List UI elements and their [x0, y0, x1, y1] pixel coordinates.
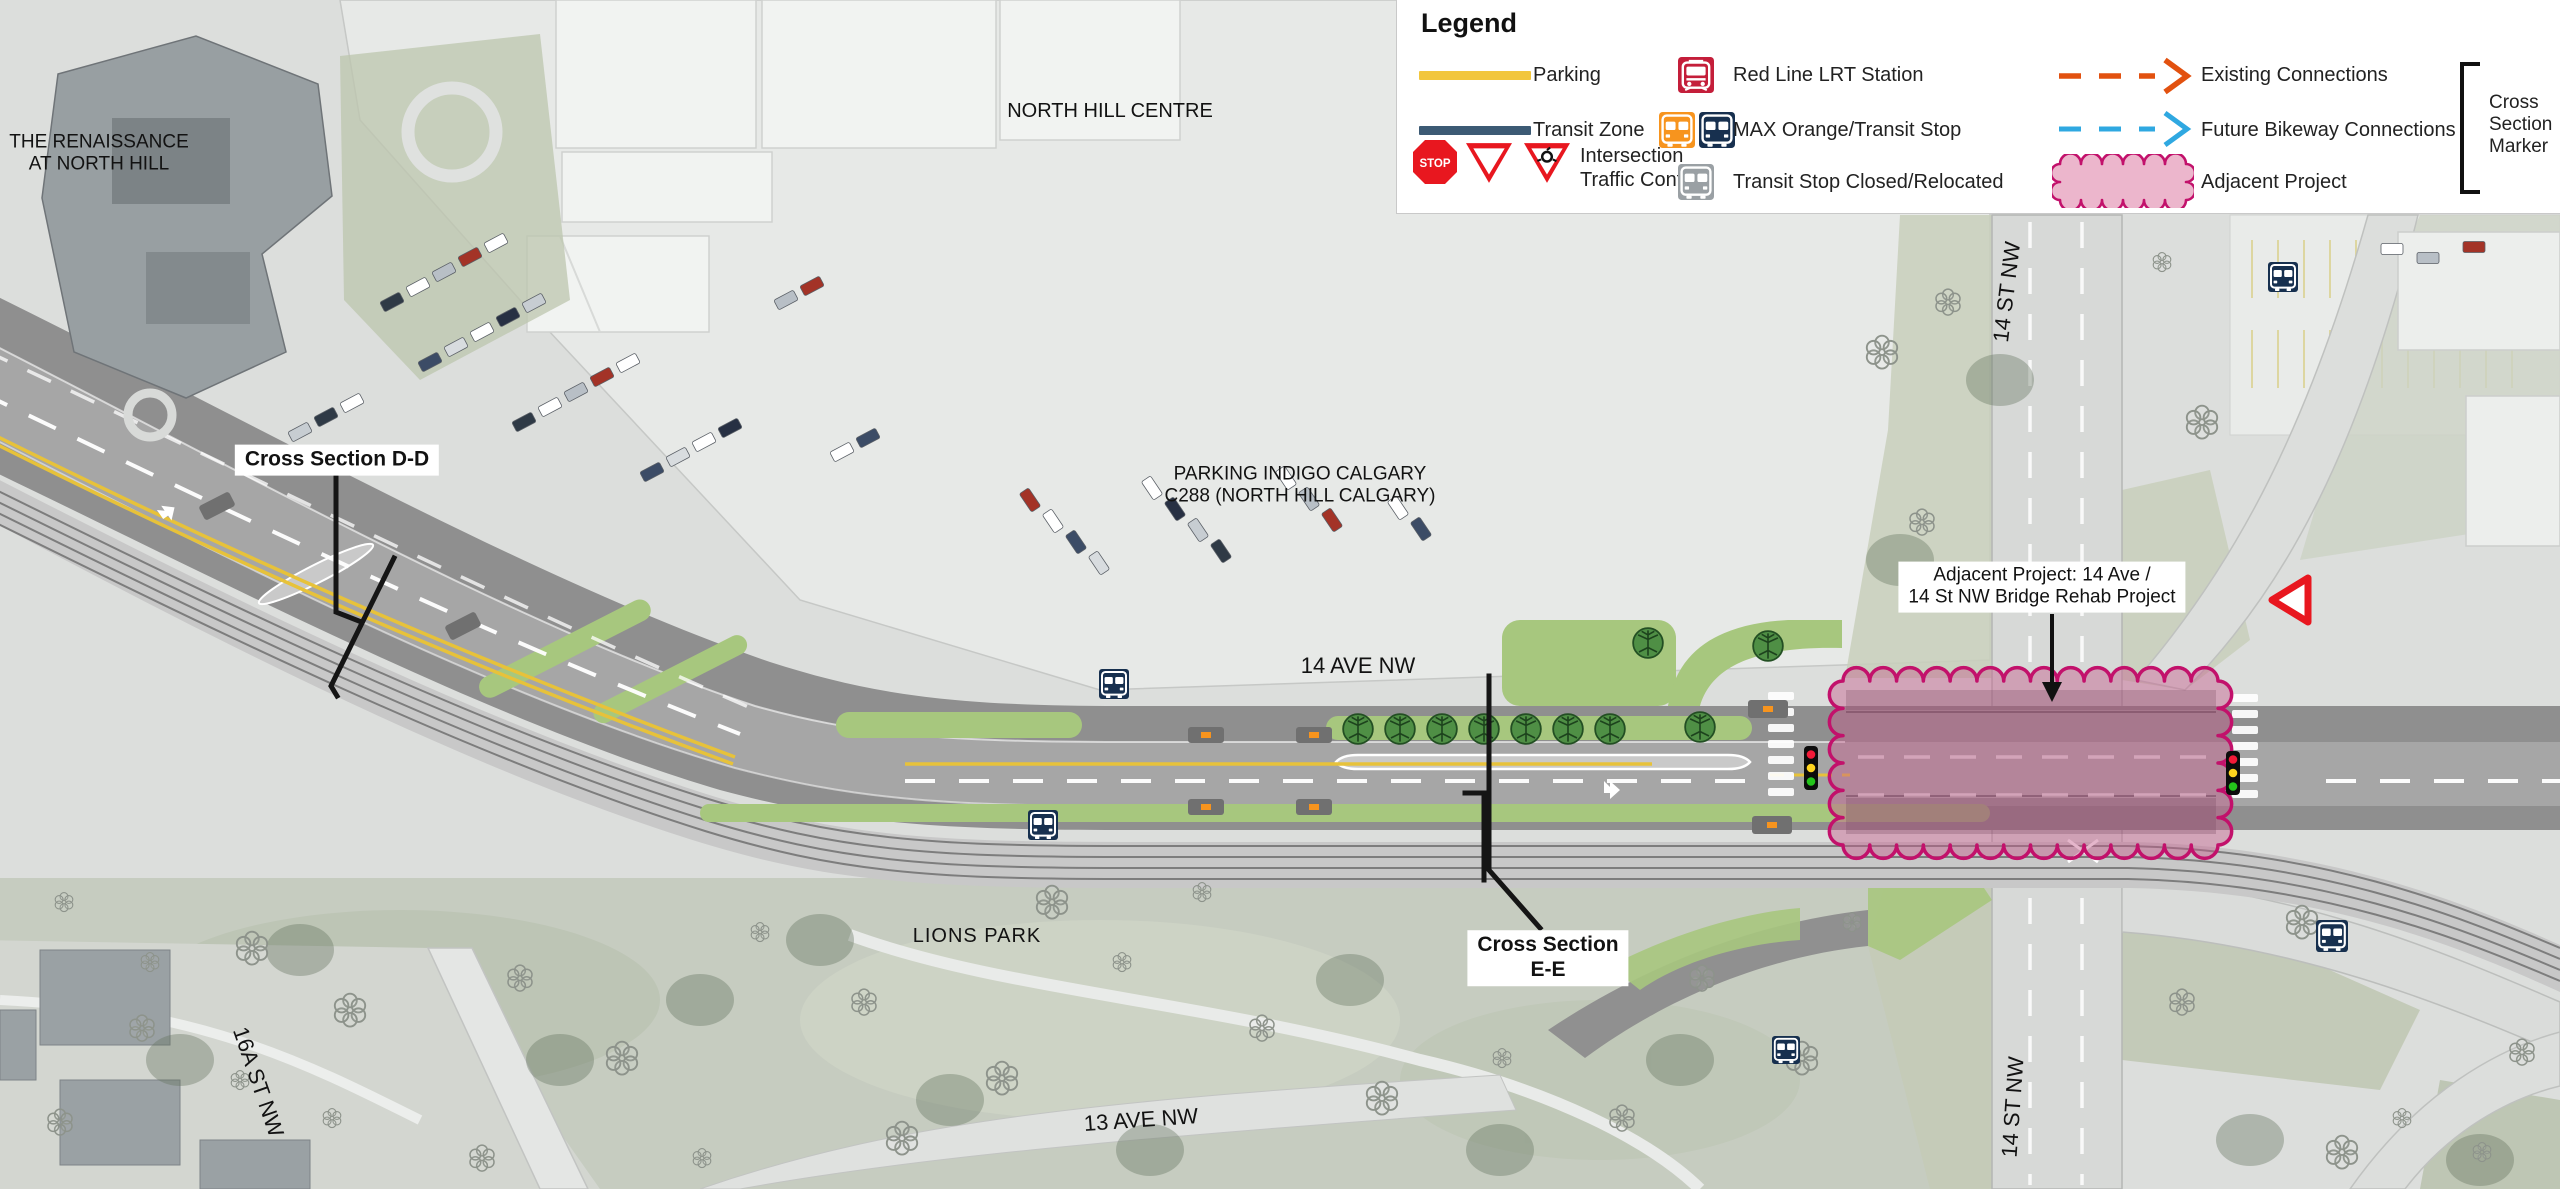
- label-lions-park: LIONS PARK: [913, 925, 1042, 949]
- legend-title: Legend: [1421, 8, 1517, 39]
- red-line-lrt-icon: [1678, 57, 1714, 93]
- legend-item-max-orange: MAX Orange/Transit Stop: [1733, 119, 1961, 142]
- legend-item-red-line-lrt: Red Line LRT Station: [1733, 64, 1924, 87]
- label-adjacent-project: Adjacent Project: 14 Ave /14 St NW Bridg…: [1898, 562, 2185, 613]
- label-cross-section-dd: Cross Section D-D: [235, 445, 439, 476]
- legend-item-parking: Parking: [1533, 64, 1601, 87]
- label-14-ave-nw: 14 AVE NW: [1301, 653, 1416, 679]
- transit-stop-icon: [1699, 112, 1735, 148]
- svg-text:STOP: STOP: [1419, 158, 1450, 170]
- bus-stop-icon: [1099, 669, 1129, 699]
- legend-item-adjacent-project: Adjacent Project: [2201, 171, 2347, 194]
- stop-sign-icon: STOP: [1411, 138, 1459, 186]
- yield-sign-icon: [1463, 140, 1515, 186]
- legend-item-transit-zone: Transit Zone: [1533, 119, 1645, 142]
- max-orange-stop-icon: [1659, 112, 1695, 148]
- legend-item-future-bikeway: Future Bikeway Connections: [2201, 119, 2456, 142]
- cross-section-marker-icon: [2460, 62, 2480, 194]
- transit-stop-closed-icon: [1678, 164, 1714, 200]
- adjacent-project-swatch: [2052, 154, 2194, 208]
- label-cross-section-ee: Cross SectionE-E: [1467, 930, 1628, 986]
- map-canvas: THE RENAISSANCEAT NORTH HILL NORTH HILL …: [0, 0, 2560, 1189]
- legend-item-existing-connections: Existing Connections: [2201, 64, 2388, 87]
- label-renaissance: THE RENAISSANCEAT NORTH HILL: [9, 132, 188, 177]
- adjacent-project-zone: [1829, 668, 2231, 859]
- transit-zone-line-swatch: [1419, 126, 1531, 135]
- legend-item-transit-stop-closed: Transit Stop Closed/Relocated: [1733, 171, 2004, 194]
- traffic-signal-icon: [2226, 751, 2240, 795]
- parking-line-swatch: [1419, 71, 1531, 80]
- bus-stop-icon: [2316, 920, 2348, 952]
- existing-connections-arrow-icon: [2057, 56, 2193, 96]
- traffic-signal-icon: [1804, 746, 1818, 790]
- yield-roundabout-icon: [1521, 140, 1573, 186]
- label-parking-indigo: PARKING INDIGO CALGARYC288 (NORTH HILL C…: [1164, 464, 1435, 509]
- legend-panel: Legend Parking Transit Zone STOP Interse…: [1396, 0, 2560, 214]
- bus-stop-icon: [1028, 810, 1058, 840]
- label-north-hill-centre: NORTH HILL CENTRE: [1007, 100, 1213, 124]
- future-bikeway-arrow-icon: [2057, 109, 2193, 149]
- legend-item-cross-section-marker: Cross Section Marker: [2489, 92, 2560, 158]
- bus-stop-icon: [1772, 1036, 1800, 1064]
- bus-stop-icon: [2268, 262, 2298, 292]
